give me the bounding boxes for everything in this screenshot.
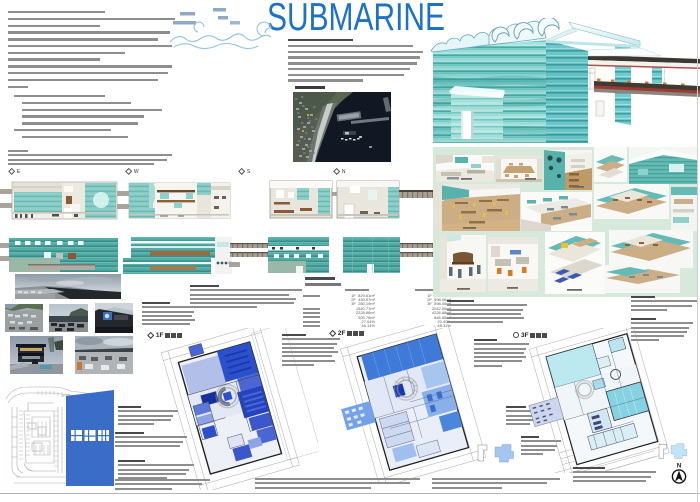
svg-text:N: N xyxy=(677,464,681,470)
svg-text:SUBMARINE: SUBMARINE xyxy=(267,0,445,36)
